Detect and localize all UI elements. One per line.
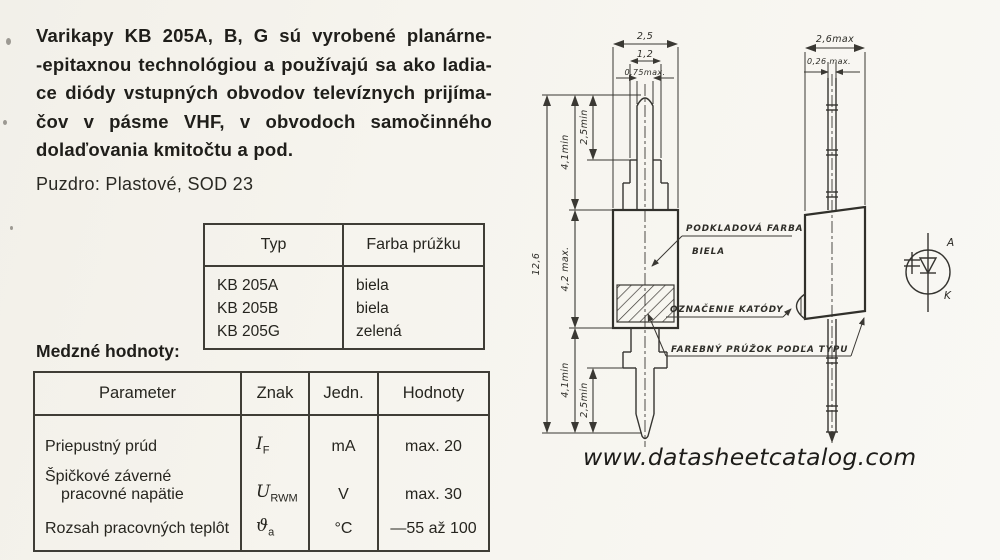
type-table-header-farba: Farba prúžku xyxy=(343,224,484,266)
side-view: 2,6max 0,26 max. xyxy=(797,34,866,446)
color-cell: biela xyxy=(343,297,484,320)
intro-paragraph: Varikapy KB 205A, B, G sú vyrobené planá… xyxy=(36,22,492,165)
limits-header-znak: Znak xyxy=(241,372,309,415)
scan-speck xyxy=(3,120,7,125)
dim-width-mid: 1,2 xyxy=(637,49,653,60)
unit-cell: mA xyxy=(309,415,378,458)
param-cell: Priepustný prúd xyxy=(34,415,241,458)
type-table: Typ Farba prúžku KB 205A biela KB 205B b… xyxy=(203,223,485,350)
type-cell: KB 205A xyxy=(204,266,343,297)
dim-body-height: 4,2 max. xyxy=(560,246,571,291)
color-stripe-band xyxy=(617,285,674,322)
symbol-sub: RWM xyxy=(270,492,297,504)
unit-cell: °C xyxy=(309,506,378,551)
package-drawing: 2,5 1,2 0,75max. 12,6 4,1min 2,5min 4,2 … xyxy=(520,0,1000,470)
table-row: Rozsah pracovných teplôt ϑa °C —55 až 10… xyxy=(34,506,489,551)
callout-color-stripe: FAREBNÝ PRÚŽOK PODĽA TYPU xyxy=(671,343,848,355)
table-row: KB 205B biela xyxy=(204,297,484,320)
dim-width-outer: 2,5 xyxy=(637,31,653,42)
color-cell: biela xyxy=(343,266,484,297)
table-row: Priepustný prúd IF mA max. 20 xyxy=(34,415,489,458)
dim-lead-top: 4,1min xyxy=(560,134,571,169)
side-body xyxy=(805,207,865,319)
datasheet-page: Varikapy KB 205A, B, G sú vyrobené planá… xyxy=(0,0,1000,560)
table-row: Špičkové záverné pracovné napätie URWM V… xyxy=(34,458,489,506)
limits-heading: Medzné hodnoty: xyxy=(36,341,180,362)
symbol-cell: IF xyxy=(241,415,309,458)
limits-table: Parameter Znak Jedn. Hodnoty Priepustný … xyxy=(33,371,490,552)
value-cell: —55 až 100 xyxy=(378,506,489,551)
limits-header-jedn: Jedn. xyxy=(309,372,378,415)
dim-side-lead: 0,26 max. xyxy=(807,57,851,66)
symbol-cell: URWM xyxy=(241,458,309,506)
intro-line: ce diódy vstupných obvodov televíznych p… xyxy=(36,79,492,108)
cathode-label: K xyxy=(944,290,952,302)
symbol-sub: F xyxy=(263,444,270,456)
symbol-sub: a xyxy=(268,526,274,538)
intro-line: Varikapy KB 205A, B, G sú vyrobené planá… xyxy=(36,22,492,51)
table-row: KB 205G zelená xyxy=(204,320,484,349)
scan-speck xyxy=(10,226,13,230)
callout-cathode-mark: OZNAČENIE KATÓDY xyxy=(670,303,784,315)
dim-overall: 12,6 xyxy=(531,253,542,276)
dim-side-width: 2,6max xyxy=(816,34,854,45)
watermark-text: www.datasheetcatalog.com xyxy=(583,443,916,471)
scan-speck xyxy=(6,38,11,45)
front-view: 2,5 1,2 0,75max. 12,6 4,1min 2,5min 4,2 … xyxy=(531,31,678,447)
varicap-symbol: A K xyxy=(904,233,954,312)
param-cell: Špičkové záverné pracovné napätie xyxy=(34,458,241,506)
dim-width-pin: 0,75max. xyxy=(625,68,666,77)
type-cell: KB 205G xyxy=(204,320,343,349)
dim-lead-top-inner: 2,5min xyxy=(579,109,590,144)
param-cell: Rozsah pracovných teplôt xyxy=(34,506,241,551)
dim-lead-bottom-inner: 2,5min xyxy=(579,382,590,417)
lead-tip xyxy=(828,432,836,443)
limits-header-parameter: Parameter xyxy=(34,372,241,415)
package-line: Puzdro: Plastové, SOD 23 xyxy=(36,174,253,195)
extension-lines xyxy=(805,52,865,211)
value-cell: max. 30 xyxy=(378,458,489,506)
callout-base-color-line2: BIELA xyxy=(692,247,725,257)
param-line: pracovné napätie xyxy=(45,486,240,504)
intro-line: čov v pásme VHF, v obvodoch samočinného xyxy=(36,108,492,137)
package-outline xyxy=(613,98,678,439)
symbol-main: U xyxy=(256,482,270,502)
param-line: Špičkové záverné xyxy=(45,468,240,486)
symbol-main: I xyxy=(256,434,263,454)
value-cell: max. 20 xyxy=(378,415,489,458)
dim-lead-bottom: 4,1min xyxy=(560,362,571,397)
type-cell: KB 205B xyxy=(204,297,343,320)
table-row: KB 205A biela xyxy=(204,266,484,297)
intro-line: dolaďovania kmitočtu a pod. xyxy=(36,136,492,165)
side-package-outline xyxy=(797,78,866,443)
unit-cell: V xyxy=(309,458,378,506)
anode-label: A xyxy=(946,237,954,249)
color-cell: zelená xyxy=(343,320,484,349)
intro-line: -epitaxnou technológiou a používajú sa a… xyxy=(36,51,492,80)
symbol-cell: ϑa xyxy=(241,506,309,551)
symbol-main: ϑ xyxy=(256,516,268,536)
type-table-header-typ: Typ xyxy=(204,224,343,266)
limits-header-hodnoty: Hodnoty xyxy=(378,372,489,415)
callout-base-color-line1: PODKLADOVÁ FARBA xyxy=(686,222,803,234)
